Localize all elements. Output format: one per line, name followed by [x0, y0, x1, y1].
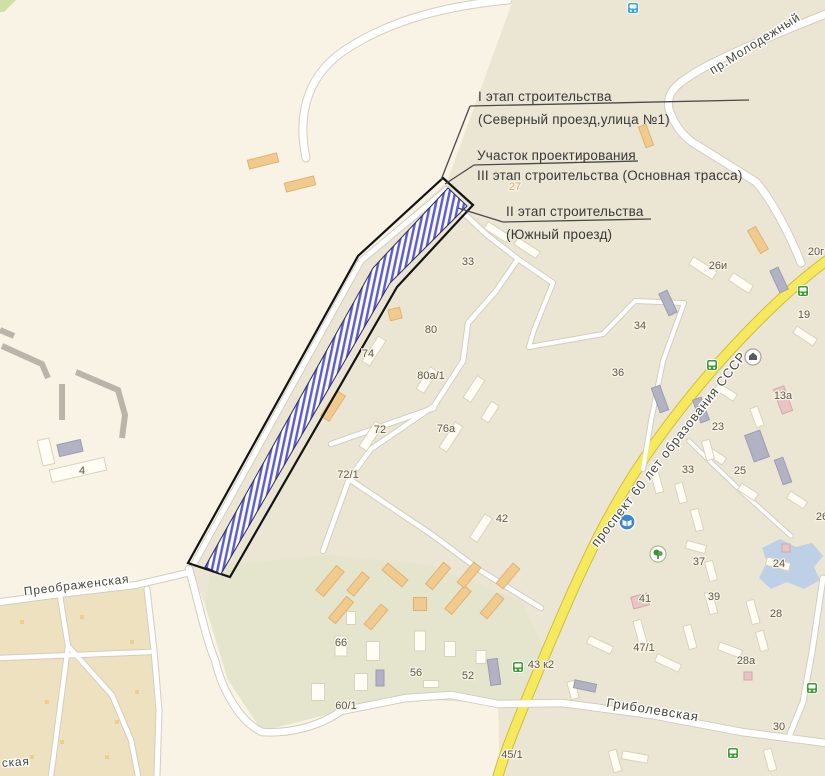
building-number-label: 26и	[709, 260, 727, 272]
building	[415, 631, 426, 651]
garden-speck	[130, 640, 134, 644]
green-corner	[0, 0, 16, 12]
tree-trunk	[657, 555, 659, 559]
bus-wheel	[809, 690, 811, 692]
bus-green-icon[interactable]	[807, 683, 818, 694]
building-number-label: 13а	[774, 390, 793, 402]
bus-window	[809, 685, 816, 689]
ruin-wall	[76, 372, 125, 438]
bus-wheel	[519, 669, 521, 671]
garden-speck	[45, 700, 49, 704]
building	[376, 670, 384, 686]
bus-blue-icon[interactable]	[628, 3, 639, 14]
annotation-stage2-subtitle: (Южный проезд)	[506, 227, 612, 242]
building-number-label: 25	[734, 465, 746, 477]
annotation-design-line2: III этап строительства (Основная трасса)	[477, 168, 743, 183]
annotation-stage1-title: I этап строительства	[478, 89, 612, 104]
bus-green-icon[interactable]	[728, 748, 739, 759]
building-number-label: 80а/1	[417, 370, 445, 382]
building-number-label: 45/1	[501, 749, 522, 761]
building	[782, 544, 790, 552]
building-number-label: 23	[712, 421, 724, 433]
building	[476, 651, 486, 664]
building-number-label: 80	[425, 324, 437, 336]
building-number-label: 20г	[808, 246, 824, 258]
ruin-wall	[2, 346, 48, 378]
building	[37, 438, 55, 466]
building-number-label: 60/1	[335, 700, 356, 712]
building-number-label: 74	[362, 348, 374, 360]
bus-window	[630, 5, 637, 9]
building-number-label: 66	[335, 637, 347, 649]
building	[355, 674, 368, 691]
annotation-design-line1: Участок проектирования	[477, 148, 636, 163]
bus-window	[730, 750, 737, 754]
bus-wheel	[804, 293, 806, 295]
building-number-label: 56	[410, 667, 422, 679]
bus-green-icon[interactable]	[513, 662, 524, 673]
bus-wheel	[800, 293, 802, 295]
building-number-label: 26	[816, 511, 825, 523]
park-icon[interactable]	[650, 546, 666, 562]
building	[247, 153, 278, 169]
bus-green-icon[interactable]	[707, 360, 718, 371]
building-number-label: 30	[773, 721, 785, 733]
bus-green-icon[interactable]	[798, 286, 809, 297]
building-number-label: 28	[770, 608, 782, 620]
building	[347, 612, 356, 625]
building-number-label: 76а	[437, 423, 456, 435]
building	[312, 684, 325, 701]
annotation-stage2-title: II этап строительства	[506, 204, 644, 219]
bus-wheel	[709, 367, 711, 369]
bus-wheel	[734, 755, 736, 757]
building-number-label: 37	[693, 556, 705, 568]
building-number-label: 34	[634, 320, 646, 332]
building-number-label: 52	[462, 670, 474, 682]
building-number-label: 39	[708, 591, 720, 603]
building-number-label: 47/1	[633, 642, 654, 654]
bus-window	[515, 664, 522, 668]
annotation-stage1-subtitle: (Северный проезд,улица №1)	[478, 112, 670, 127]
building	[744, 672, 752, 680]
map-svg[interactable]: 272533807480а/17276а72/142466565260/145/…	[0, 0, 825, 776]
building	[388, 307, 402, 321]
building-number-label: 19	[798, 309, 810, 321]
building	[414, 598, 427, 611]
garden-speck	[30, 755, 34, 759]
building	[367, 642, 380, 661]
garden-speck	[80, 615, 84, 619]
garden-speck	[105, 755, 109, 759]
building	[57, 439, 83, 456]
bus-wheel	[515, 669, 517, 671]
building-number-label: 72/1	[337, 469, 358, 481]
building-number-label: 36	[612, 367, 624, 379]
building	[445, 642, 456, 657]
building-number-label: 43 к2	[528, 659, 554, 671]
street-name-label: ская	[1, 754, 30, 770]
bus-wheel	[713, 367, 715, 369]
building-number-label: 33	[462, 256, 474, 268]
building-number-label: 72	[374, 424, 386, 436]
building-number-label: 28а	[737, 655, 756, 667]
bus-wheel	[730, 755, 732, 757]
bus-wheel	[634, 10, 636, 12]
garden-speck	[115, 720, 119, 724]
building	[284, 176, 315, 192]
bus-window	[709, 362, 716, 366]
bus-wheel	[630, 10, 632, 12]
bus-wheel	[813, 690, 815, 692]
ruin-wall	[0, 330, 14, 336]
garden-speck	[20, 620, 24, 624]
garden-speck	[135, 690, 139, 694]
building-number-label: 33	[682, 464, 694, 476]
building-number-label: 24	[773, 558, 785, 570]
building-number-label: 41	[639, 593, 651, 605]
building-number-label: 42	[496, 513, 508, 525]
map-canvas[interactable]: 272533807480а/17276а72/142466565260/145/…	[0, 0, 825, 776]
building	[424, 681, 439, 688]
garden-speck	[60, 740, 64, 744]
bus-window	[800, 288, 807, 292]
building-number-label: 4	[79, 465, 85, 477]
